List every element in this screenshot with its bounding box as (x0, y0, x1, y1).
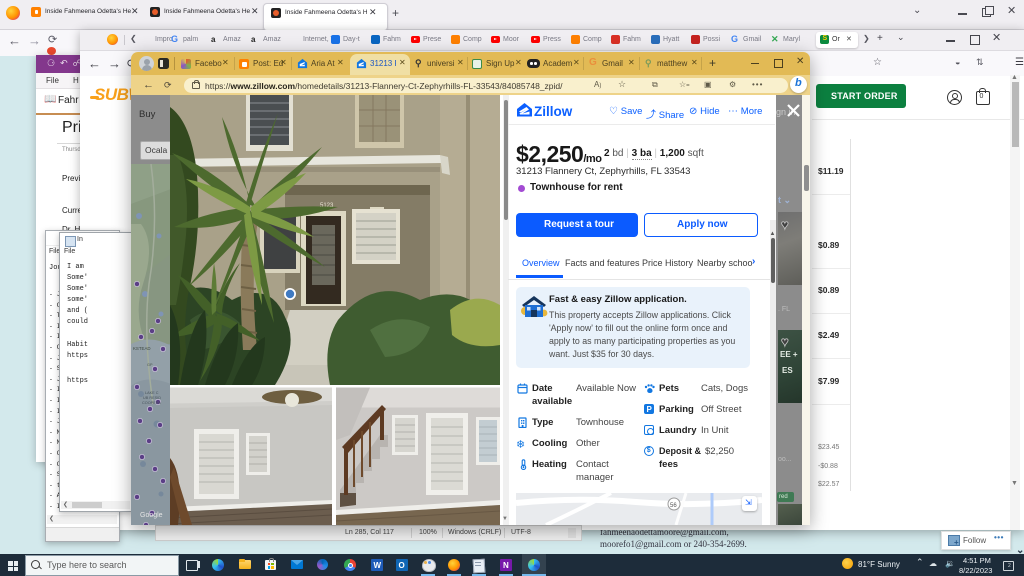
svg-text:KSTEAD: KSTEAD (133, 346, 151, 351)
svg-text:COOPERA: COOPERA (142, 401, 161, 405)
svg-text:Zillow: Zillow (534, 104, 573, 119)
svg-text:GP: GP (147, 363, 153, 367)
svg-text:LAKE C: LAKE C (145, 391, 159, 395)
svg-text:56: 56 (670, 503, 677, 509)
svg-text:UB RESID: UB RESID (143, 396, 161, 400)
